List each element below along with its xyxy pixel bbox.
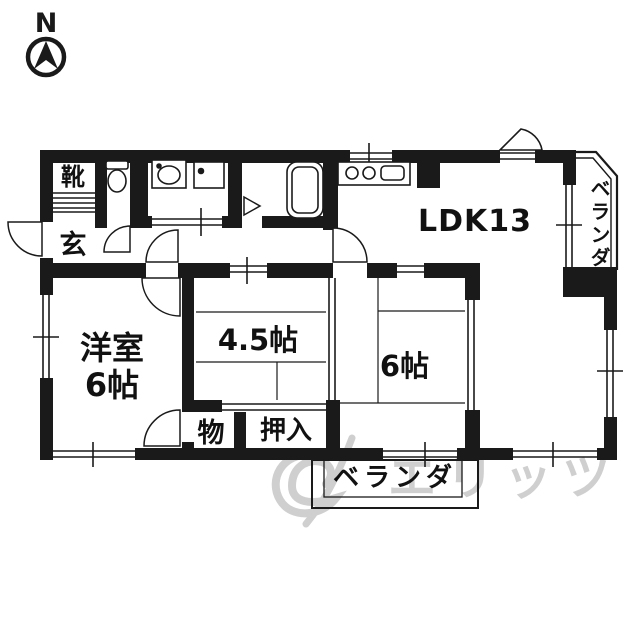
- kitchen-sink-icon: [381, 166, 404, 180]
- room-label-western-room: 洋室 6帖: [53, 330, 171, 404]
- storage-door-arc: [144, 410, 180, 446]
- stove-burner-icon: [363, 167, 375, 179]
- stove-burner-icon: [346, 167, 358, 179]
- floorplan-drawing: エリッツ: [0, 0, 640, 640]
- room-label-veranda-right: ベランダ: [576, 174, 610, 274]
- western-room-door-arc-room: [142, 278, 180, 316]
- washing-machine-tap-icon: [199, 169, 204, 174]
- room-label-shoe-cabinet: 靴: [50, 164, 96, 191]
- compass-n-label: N: [35, 8, 58, 39]
- shoe-cabinet-shelves: [52, 193, 95, 212]
- entrance-door-arc: [8, 222, 42, 256]
- toilet-tank-icon: [106, 161, 128, 169]
- room-label-entrance: 玄: [50, 231, 96, 261]
- room-label-veranda-bottom: ベランダ: [320, 464, 470, 493]
- toilet-bowl-icon: [108, 170, 126, 192]
- top-door-swing-arc: [500, 129, 542, 150]
- compass: N: [28, 8, 64, 75]
- bathtub-inner-icon: [292, 167, 318, 213]
- washstand-faucet-icon: [157, 164, 161, 168]
- room-label-closet: 押入: [244, 417, 328, 446]
- toilet-door-arc: [104, 226, 130, 252]
- fixtures: [106, 160, 410, 218]
- floorplan-image: エリッツ: [0, 0, 640, 640]
- room-label-6-tatami: 6帖: [352, 350, 457, 382]
- bathroom-door-marker: [244, 197, 260, 215]
- washing-machine-icon: [194, 162, 224, 188]
- ldk-door-arc: [333, 228, 367, 262]
- room-label-ldk: LDK13: [400, 205, 550, 239]
- room-label-storage: 物: [188, 419, 234, 449]
- western-room-door-arc-hall: [146, 230, 178, 262]
- washbasin-icon: [158, 166, 180, 184]
- room-label-4-5-tatami: 4.5帖: [196, 324, 320, 356]
